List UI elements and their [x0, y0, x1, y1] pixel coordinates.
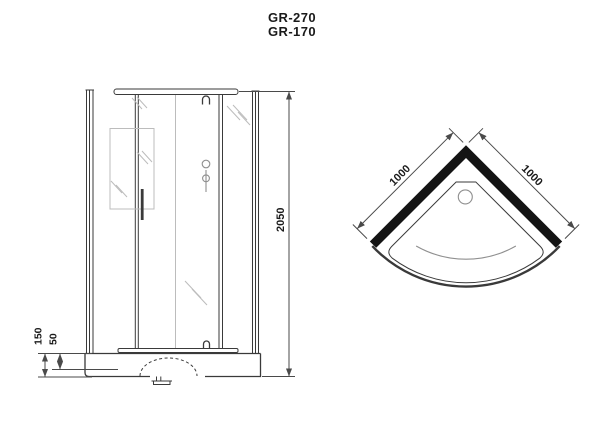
drain-outlet — [152, 377, 173, 385]
dimension-label-1000-right: 1000 — [519, 163, 545, 189]
dimension-tray-heights: 150 50 — [33, 327, 119, 377]
drain-hole — [455, 187, 475, 207]
door-roller — [203, 96, 210, 104]
right-frame-profile — [252, 91, 260, 353]
dimension-left-side: 1000 — [348, 123, 463, 238]
bottom-sill-rail — [118, 349, 238, 353]
mixer-valve — [202, 160, 210, 192]
model-number-2: GR-170 — [268, 24, 316, 39]
dimension-label-1000-left: 1000 — [387, 163, 413, 189]
glass-panel-edges — [135, 95, 222, 349]
model-number-1: GR-270 — [268, 10, 316, 25]
top-rail — [114, 89, 238, 95]
top-view: 1000 1000 — [347, 101, 585, 339]
front-view: 2050 150 50 — [33, 89, 296, 385]
back-glass-panel — [110, 129, 154, 210]
dimension-label-150: 150 — [33, 327, 45, 345]
dimension-label-50: 50 — [48, 333, 60, 345]
tray-inner-rim — [386, 172, 546, 332]
door-handle — [141, 189, 144, 220]
left-frame-profile — [86, 90, 95, 353]
title-block: GR-270 GR-170 — [268, 10, 316, 39]
mixer-upper-knob — [202, 160, 210, 168]
tray-skirt-arch-hidden-line — [140, 358, 197, 376]
dimension-right-side: 1000 — [469, 123, 584, 238]
dimension-overall-height: 2050 — [239, 92, 295, 377]
dimension-label-2050: 2050 — [275, 208, 287, 232]
technical-drawing-canvas: GR-270 GR-170 — [0, 0, 600, 424]
drawing-sheet: GR-270 GR-170 — [0, 0, 600, 424]
door-stopper — [204, 341, 210, 349]
